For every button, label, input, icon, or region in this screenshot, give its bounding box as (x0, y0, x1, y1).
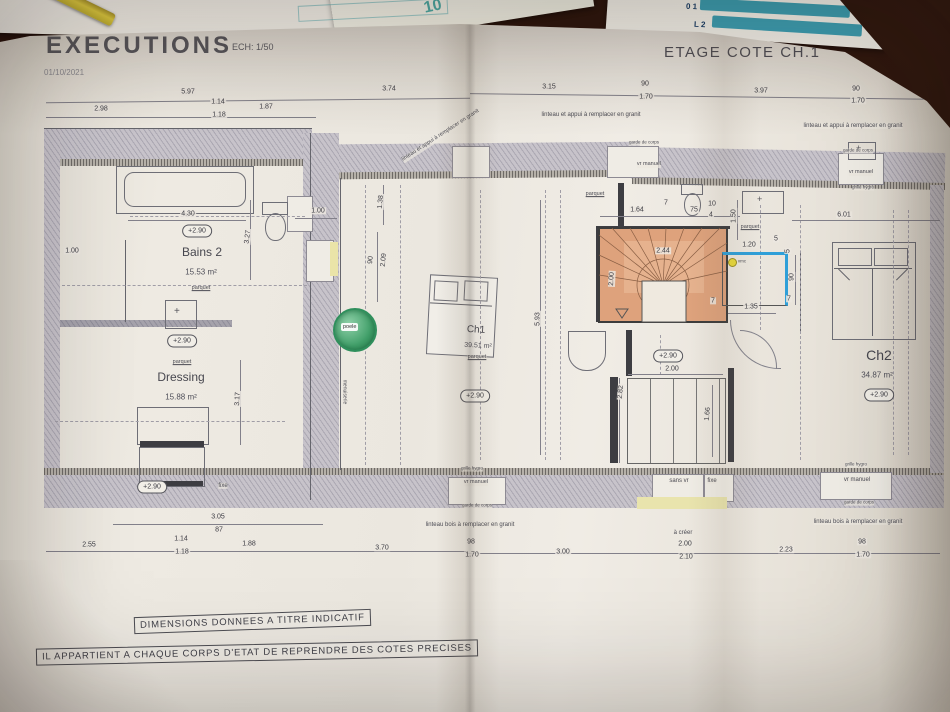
dimension-label: 5 (773, 235, 779, 242)
dashed-line (55, 421, 285, 422)
dimension-label: 1.66 (704, 406, 713, 422)
vent-dot (728, 258, 737, 267)
wall-segment (44, 128, 312, 162)
stove-stamp-label: poele (341, 323, 358, 331)
dimension-label: 90 (367, 255, 375, 265)
dimension-line (470, 93, 940, 100)
window-opening (287, 196, 313, 232)
dashed-line (62, 285, 307, 286)
annotation-label: garde de corps (629, 141, 659, 146)
annotation-label: grille hygro (461, 467, 483, 472)
dimension-label: 5.93 (534, 311, 541, 327)
annotation-label: vr manuel (637, 162, 661, 168)
annotation-label: parquet (468, 355, 487, 361)
dashed-line (893, 210, 894, 455)
dimension-label: 1.18 (211, 111, 227, 118)
dimension-label: 3.74 (381, 85, 397, 92)
dimension-label: 1.50 (730, 208, 737, 224)
wardrobe-upper (137, 407, 209, 445)
level-oval-dressing: +2.90 (167, 335, 197, 348)
dimension-label: 2.00 (608, 271, 616, 287)
dimension-label: 1.14 (173, 535, 189, 542)
dimension-line (628, 374, 723, 375)
plus-mark-icon: + (174, 306, 180, 317)
wall-segment (618, 183, 624, 228)
room-name-ch2: Ch2 (866, 347, 892, 363)
annotation-label: garde de corps (843, 149, 873, 154)
dimension-label: 4 (708, 211, 714, 218)
dimension-label: 1.70 (850, 97, 866, 104)
teal-row-label-1: 0 1 (686, 2, 698, 12)
dimension-label: 7 (710, 297, 716, 304)
dimension-label: 1.88 (241, 540, 257, 547)
dashed-line (130, 216, 305, 217)
wall-line (310, 133, 311, 500)
dimension-label: 2.98 (93, 105, 109, 112)
wall-line (125, 240, 126, 322)
annotation-label: parquet (586, 192, 605, 198)
annotation-label: linteau bois à remplacer en granit (814, 519, 903, 525)
dimension-label: 7 (786, 295, 792, 302)
dimension-label: 87 (214, 526, 224, 533)
note-indicative-dimensions: DIMENSIONS DONNEES A TITRE INDICATIF (134, 609, 371, 634)
dimension-label: 2.23 (778, 546, 794, 553)
dimension-label: 6.01 (836, 211, 852, 218)
dimension-label: 1.70 (638, 93, 654, 100)
closet-notch (433, 280, 458, 301)
note-corps-etat: IL APPARTIENT A CHAQUE CORPS D'ETAT DE R… (36, 639, 478, 665)
bed-split-line (872, 268, 873, 336)
stair-winder (598, 227, 728, 323)
dashed-line (545, 190, 546, 460)
wall-segment (626, 330, 632, 376)
teal-row-label-2: L 2 (694, 20, 706, 30)
dimension-label: 1.14 (210, 98, 226, 105)
dimension-line (792, 220, 940, 221)
annotation-label: grille hygro (845, 463, 867, 468)
annotation-label: garde de corps (462, 504, 492, 509)
annotation-label: vmc (738, 260, 746, 265)
dimension-label: 3.97 (753, 87, 769, 94)
level-oval-bains2: +2.90 (182, 225, 212, 238)
annotation-label: sans vr (669, 478, 688, 484)
wall-segment (930, 185, 944, 473)
dimension-label: 3.17 (234, 391, 242, 407)
dimension-line (46, 117, 316, 118)
annotation-label: linteau et appui à remplacer en granit (803, 123, 902, 129)
bed-pillow (838, 248, 872, 266)
plus-mark-icon: + (757, 194, 762, 204)
annotation-label: parquet (192, 286, 211, 292)
annotation-label: linteau bois à remplacer en granit (426, 522, 515, 528)
wall-granite-strip (44, 159, 312, 166)
annotation-label: parquet (741, 225, 760, 231)
annotation-label: grille hygro (852, 186, 874, 191)
dashed-line (400, 185, 401, 465)
annotation-label: parquet (173, 360, 192, 366)
dimension-label: 98 (466, 538, 476, 545)
annotation-label: à créer (674, 530, 693, 536)
dimension-label: 2.10 (678, 553, 694, 560)
dimension-label: 5 (784, 248, 791, 254)
dimension-label: 3.00 (555, 548, 571, 555)
bed-line (834, 268, 912, 269)
dimension-label: 2.55 (81, 541, 97, 548)
bottom-left-shadow (0, 560, 280, 712)
photo-scene: 10 0 1 L 2 M 3 EXECUTIONS ECH: 1/50 01/1… (0, 0, 950, 712)
level-oval-ch2: +2.90 (864, 389, 894, 402)
dimension-label: 2.82 (617, 384, 626, 400)
highlight-strip-yellow (637, 497, 727, 509)
annotation-label: fixe (707, 478, 716, 484)
page-title: EXECUTIONS (46, 32, 232, 60)
dimension-label: 1.00 (310, 207, 326, 214)
dimension-label: 3.70 (374, 544, 390, 551)
washbasin (742, 191, 784, 214)
bed-pillow (874, 248, 908, 266)
dimension-label: 2.44 (655, 247, 671, 254)
dimension-label: 2.09 (380, 252, 389, 268)
dimension-label: 90 (640, 80, 650, 87)
annotation-label: linteau et appui à remplacer en granit (541, 112, 640, 118)
dimension-line (113, 524, 323, 525)
annotation-label: fixe (218, 483, 227, 489)
dimension-line (295, 218, 337, 219)
bathtub-inner (124, 172, 246, 207)
dimension-label: 5.97 (180, 88, 196, 95)
glass-partition (627, 378, 726, 464)
wall-line (44, 128, 312, 129)
dimension-line (128, 220, 246, 221)
dimension-label: 90 (851, 85, 861, 92)
wall-segment (60, 320, 232, 327)
annotation-label: vr manuel (844, 477, 870, 483)
dashed-line (908, 210, 909, 455)
window-opening (452, 146, 490, 178)
dimension-line (728, 313, 776, 314)
level-oval-ch1: +2.90 (460, 390, 490, 403)
annotation-label: menuiserie (341, 380, 346, 404)
wall-segment (44, 128, 60, 503)
plan-sheet: EXECUTIONS ECH: 1/50 01/10/2021 ETAGE CO… (0, 0, 950, 712)
dimension-label: 1.00 (64, 247, 80, 254)
dimension-label: 7 (663, 199, 669, 206)
dimension-label: 75 (689, 206, 699, 213)
room-name-bains2: Bains 2 (182, 245, 222, 259)
room-name-ch1: Ch1 (467, 324, 486, 336)
dimension-label: 3.15 (541, 83, 557, 90)
level-oval-dressing-2: +2.90 (137, 481, 167, 494)
dashed-line (800, 205, 801, 460)
room-area-dressing: 15.88 m² (165, 393, 197, 402)
dimension-label: 1.70 (855, 551, 871, 558)
room-name-dressing: Dressing (157, 370, 204, 384)
room-area-ch1: 39.51 m² (464, 342, 492, 350)
shower-fixture (165, 300, 197, 329)
dimension-line (600, 216, 740, 217)
dimension-label: 1.64 (629, 206, 645, 213)
dimension-label: 2.00 (677, 540, 693, 547)
level-oval-landing: +2.90 (653, 350, 683, 363)
insulation-chip (330, 242, 338, 276)
sheet-title: ETAGE COTE CH.1 (664, 44, 820, 61)
dimension-label: 1.70 (464, 551, 480, 558)
dimension-line (377, 232, 378, 302)
dashed-line (560, 190, 561, 460)
room-area-ch2: 34.87 m² (861, 371, 893, 380)
dimension-label: 1.38 (377, 194, 386, 210)
dimension-label: 4.30 (180, 210, 196, 217)
dimension-label: 10 (707, 200, 717, 207)
toilet-bowl (265, 213, 286, 241)
pedestal-sink (568, 331, 606, 371)
dimension-line (46, 551, 466, 552)
dimension-label: 1.20 (741, 241, 757, 248)
annotation-label: garde de corps (844, 501, 874, 506)
scale-label: ECH: 1/50 (232, 42, 274, 52)
annotation-label: vr manuel (464, 480, 488, 486)
wall-segment (303, 133, 339, 501)
dimension-label: 90 (788, 272, 795, 282)
wall-segment (728, 368, 734, 462)
plan-date: 01/10/2021 (44, 68, 84, 77)
dimension-label: 3.27 (243, 229, 252, 245)
dimension-line (540, 200, 541, 455)
room-area-bains2: 15.53 m² (185, 268, 217, 277)
dimension-label: 1.35 (743, 303, 759, 310)
dimension-label: 1.87 (258, 103, 274, 110)
annotation-label: vr manuel (849, 170, 873, 176)
dimension-label: 1.18 (174, 548, 190, 555)
dimension-label: 2.00 (664, 365, 680, 372)
closet-notch (463, 280, 488, 301)
dimension-label: 3.05 (210, 513, 226, 520)
dimension-label: 98 (857, 538, 867, 545)
